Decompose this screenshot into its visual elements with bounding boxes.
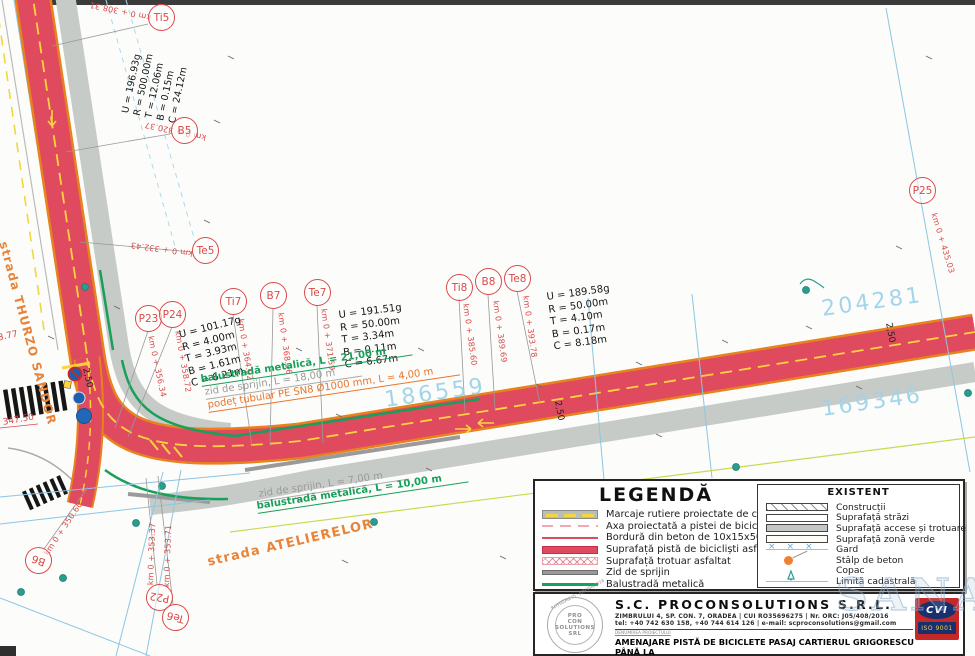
curve-data-1: U = 196.93gR = 500.00m T = 12.06mB = 0.1… — [120, 50, 192, 124]
company-contact: tel: +40 742 630 158, +40 744 614 126 | … — [615, 620, 915, 627]
bike-axis-swatch — [542, 525, 598, 527]
existent-row: ××× Gard — [766, 544, 966, 555]
site-plan-canvas: Ti5 B5 Te5 P23 P24 Ti7 B7 Te7 Ti8 B8 Te8… — [0, 0, 975, 656]
station-b8: B8 — [475, 268, 502, 295]
station-b7: B7 — [260, 282, 287, 309]
access-sidewalk-swatch — [766, 524, 828, 532]
project-title: AMENAJARE PISTĂ DE BICICLETE PASAJ CARTI… — [615, 637, 915, 656]
station-ti5: Ti5 — [148, 4, 175, 31]
existent-label: Suprafață zonă verde — [836, 534, 935, 545]
existent-row: Suprafață străzi — [766, 513, 966, 524]
legend-label: Zid de sprijin — [606, 567, 670, 578]
streets-swatch — [766, 514, 828, 522]
bike-surface-swatch — [542, 546, 598, 554]
station-te5: Te5 — [192, 237, 219, 264]
road-markings-swatch — [542, 510, 598, 519]
existent-label: Stâlp de beton — [836, 555, 903, 566]
existent-label: Gard — [836, 544, 858, 555]
curve-data-4: U = 189.58gR = 50.00m T = 4.10mB = 0.17m… — [546, 283, 617, 354]
station-p24: P24 — [159, 301, 186, 328]
legend-title: LEGENDĂ — [599, 484, 713, 506]
legend-label: Bordură din beton de 10x15x50 cm — [606, 532, 780, 543]
legend-label: Axa proiectată a pistei de biciclete — [606, 521, 776, 532]
title-block: RO35696275 - J05/408/2016 PRO CON SOLUTI… — [533, 592, 965, 656]
company-address: ZIMBRULUI 4, SP. CON. 7, ORADEA | CUI RO… — [615, 613, 915, 620]
existent-row: Copac — [766, 566, 966, 577]
tree-swatch — [766, 566, 828, 575]
existent-row: Stâlp de beton — [766, 555, 966, 566]
station-te8: Te8 — [504, 265, 531, 292]
legend-label: Balustradă metalică — [606, 579, 704, 590]
legend-box: LEGENDĂ Marcaje rutiere proiectate de cu… — [533, 479, 965, 591]
buildings-swatch — [766, 503, 828, 511]
existent-row: Construcții — [766, 502, 966, 513]
station-ti8: Ti8 — [446, 274, 473, 301]
stamp-text: SRL — [568, 631, 581, 637]
existent-label: Construcții — [836, 502, 886, 513]
company-stamp: RO35696275 - J05/408/2016 PRO CON SOLUTI… — [547, 597, 603, 653]
project-name-label: DENUMIREA PROIECTULUI — [615, 631, 915, 636]
station-p25: P25 — [909, 177, 936, 204]
retaining-wall-swatch — [542, 570, 598, 575]
legend-label: Suprafață trotuar asfaltat — [606, 556, 731, 567]
existent-label: Suprafață accese și trotuare — [836, 523, 966, 534]
scan-edge — [40, 0, 975, 5]
existent-title: EXISTENT — [758, 487, 959, 498]
station-b5: B5 — [171, 117, 198, 144]
cvi-logo-text: CVI — [918, 601, 956, 619]
existent-label: Limită cadastrală — [836, 576, 915, 587]
station-te7: Te7 — [304, 279, 331, 306]
existent-label: Suprafață străzi — [836, 512, 909, 523]
concrete-curb-swatch — [542, 537, 598, 540]
company-name: S.C. PROCONSOLUTIONS S.R.L. — [615, 597, 915, 612]
iso-9001-label: ISO 9001 — [918, 622, 956, 634]
existent-label: Copac — [836, 565, 865, 576]
station-p23: P23 — [135, 305, 162, 332]
iso-certification-logo: CVI ISO 9001 — [915, 598, 959, 640]
concrete-pole-swatch — [766, 556, 828, 565]
legend-existent-box: EXISTENT Construcții Suprafață străzi Su… — [757, 484, 960, 588]
asphalt-sidewalk-swatch — [542, 557, 598, 565]
station-ti7: Ti7 — [220, 288, 247, 315]
fence-swatch: ××× — [766, 545, 828, 554]
cadastral-limit-swatch — [766, 581, 828, 583]
existent-row: Suprafață accese și trotuare — [766, 523, 966, 534]
